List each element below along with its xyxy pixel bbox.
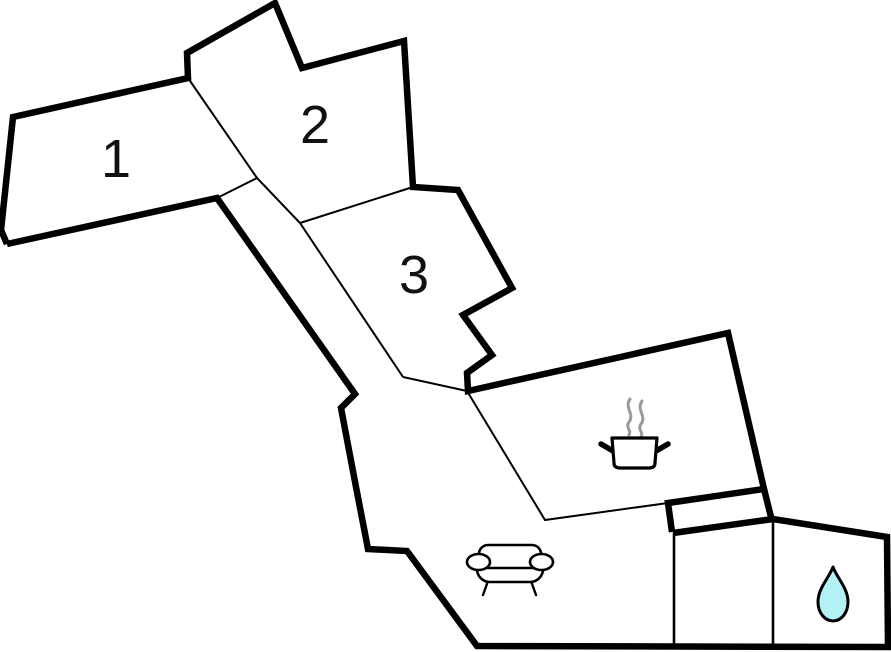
corridor-right-wall — [188, 78, 403, 377]
room2-bottom-wall — [300, 187, 413, 223]
sofa-armrest-right-icon — [530, 554, 553, 570]
room3-bottom-wall — [403, 377, 467, 391]
outer-wall-south-chain — [7, 198, 888, 647]
sofa-armrest-left-icon — [467, 554, 490, 570]
room-3-label: 3 — [399, 245, 429, 305]
pot-body-icon — [612, 438, 657, 468]
room-2-label: 2 — [300, 95, 330, 155]
floor-plan-canvas: 1 2 3 — [0, 0, 891, 652]
cooking-pot-icon — [601, 399, 668, 468]
kitchen-bath-connector-wall — [764, 489, 771, 517]
steam-line-left-icon — [628, 399, 631, 435]
steam-line-right-icon — [640, 401, 643, 437]
floor-plan-drawing: 1 2 3 — [0, 0, 891, 652]
sofa-leg-left-icon — [483, 581, 488, 595]
sofa-icon — [467, 545, 553, 595]
room-1-label: 1 — [101, 129, 131, 189]
room1-right-wall — [217, 178, 257, 198]
water-drop-icon — [818, 567, 848, 621]
